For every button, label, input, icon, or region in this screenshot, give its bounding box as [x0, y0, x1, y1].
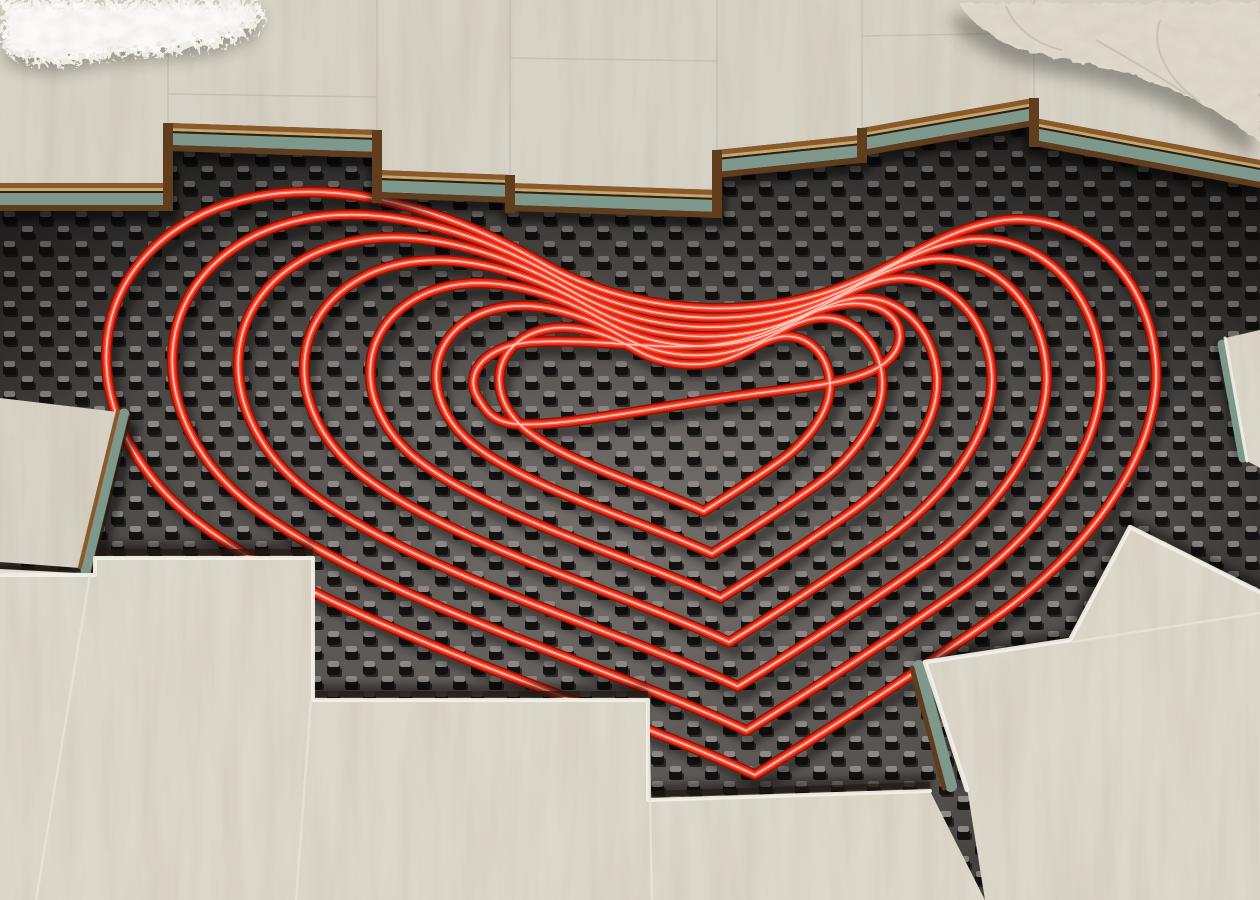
step-edge	[505, 175, 515, 213]
edge-strip	[0, 193, 168, 205]
step-edge	[857, 128, 867, 163]
step-edge	[712, 150, 722, 218]
step-edge	[372, 130, 382, 203]
step-edge	[1029, 98, 1039, 147]
edge-strip	[0, 188, 168, 191]
edge-strip	[0, 191, 168, 193]
edge-strip	[0, 205, 168, 211]
step-edge	[163, 123, 173, 211]
edge-strip	[0, 183, 168, 188]
underfloor-heating-render: Photorealistic 3D render of an underfloo…	[0, 0, 1260, 900]
scene-canvas: Photorealistic 3D render of an underfloo…	[0, 0, 1260, 900]
